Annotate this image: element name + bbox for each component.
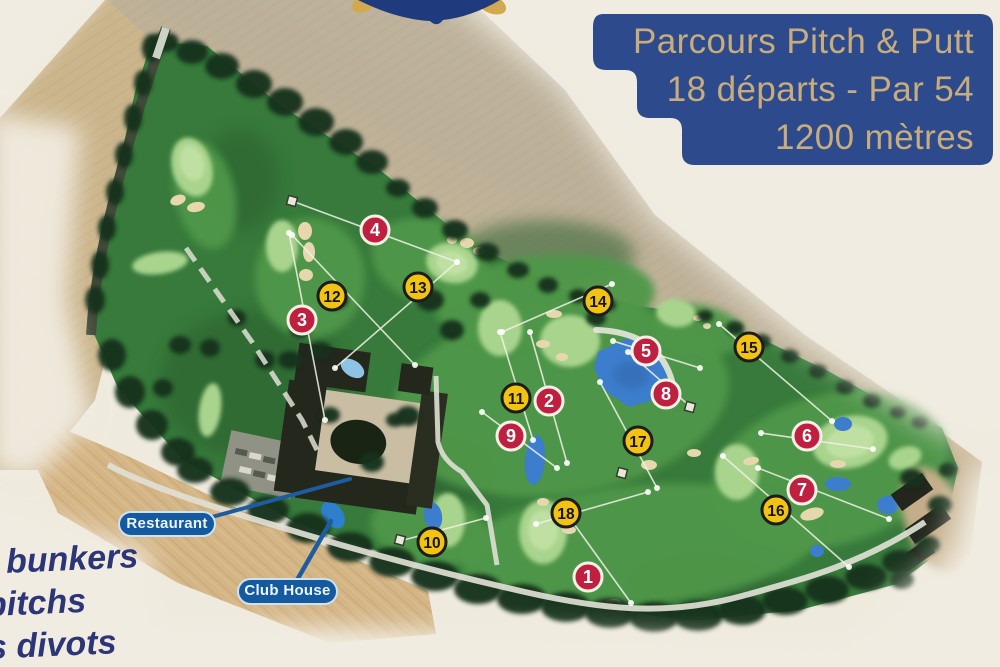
tree-cluster [278,351,302,369]
restaurant-label-pill: Restaurant [118,511,216,537]
hole-marker-number: 7 [797,480,807,500]
hole-marker-number: 1 [583,567,593,587]
hole-line-endpoint [610,338,616,344]
tree-cluster [91,251,109,279]
tree-cluster [863,394,881,408]
hole-line-endpoint [720,453,726,459]
course-aerial-map: 123456789101112131415161718 Parcours Pit… [0,0,1000,667]
hole-line-endpoint [697,365,703,371]
hole-marker-18: 18 [552,499,580,527]
tree-cluster [386,179,410,197]
hole-line-endpoint [886,516,892,522]
green [715,444,759,500]
tree-cluster [809,364,827,378]
tree-cluster [442,220,468,240]
restaurant-buildings [273,342,452,517]
hole-marker-number: 15 [740,340,758,357]
tree-cluster [98,215,116,241]
hole-marker-number: 12 [323,289,340,306]
tree-cluster [298,108,334,136]
tree-cluster [538,277,558,293]
tee-box [684,401,695,412]
tree-cluster [115,142,133,168]
hole-line-endpoint [554,465,560,471]
hole-line-endpoint [332,365,338,371]
tree-cluster [176,40,208,64]
tree-cluster [939,463,957,477]
tree-cluster [200,339,220,357]
tree-cluster [236,70,272,98]
tee-box [616,467,627,478]
hole-line-endpoint [564,460,570,466]
hole-marker-number: 6 [802,426,812,446]
hole-line-endpoint [454,259,460,265]
title-line-3: 1200 mètres [775,118,974,157]
bunker [298,222,312,240]
bunker [687,449,701,457]
hole-line-endpoint [716,321,722,327]
tree-cluster [412,198,438,218]
bunker [536,340,550,348]
tree-cluster [85,286,105,314]
hole-line-endpoint [530,437,536,443]
hole-marker-1: 1 [574,563,602,591]
hole-marker-10: 10 [418,528,446,556]
hole-marker-17: 17 [624,427,652,455]
hole-marker-number: 3 [297,310,307,330]
hole-line-endpoint [645,489,651,495]
legend-fragment-divots: s divots [0,623,117,667]
tree-cluster [781,349,799,363]
hole-marker-11: 11 [502,384,530,412]
bunker [703,323,711,329]
golf-course-map-sign: 123456789101112131415161718 Parcours Pit… [0,0,1000,667]
tree-cluster [836,380,854,394]
hole-marker-14: 14 [584,287,612,315]
hole-marker-number: 8 [661,384,671,404]
bunker [299,269,313,281]
tree-cluster [890,571,914,589]
hole-marker-number: 17 [629,434,646,451]
legend-fragment-bunkers: bunkers [5,537,139,582]
bunker [556,353,568,361]
hole-line-endpoint [533,521,539,527]
hole-line-endpoint [497,329,503,335]
hole-line-endpoint [755,465,761,471]
hole-marker-6: 6 [793,422,821,450]
tree-cluster [115,376,145,408]
hole-marker-16: 16 [762,496,790,524]
hole-marker-9: 9 [497,422,525,450]
hole-marker-3: 3 [288,306,316,334]
hole-line-endpoint [625,349,631,355]
tree-cluster [386,413,404,427]
hole-marker-number: 10 [423,535,440,552]
hole-marker-7: 7 [788,476,816,504]
tree-cluster [890,406,906,418]
hole-line-endpoint [758,430,764,436]
hole-line-endpoint [527,329,533,335]
pond [834,417,852,431]
hole-marker-2: 2 [535,387,563,415]
bunker [537,498,549,506]
green [478,300,522,356]
hole-line-endpoint [322,417,328,423]
title-line-1: Parcours Pitch & Putt [633,22,974,61]
hole-marker-number: 5 [641,341,651,361]
hole-line-endpoint [412,362,418,368]
tree-cluster [329,129,363,155]
hole-line-endpoint [654,485,660,491]
hole-line-endpoint [597,379,603,385]
green [266,220,298,272]
tree-cluster [134,70,152,96]
hole-marker-number: 16 [767,503,785,520]
hole-line-endpoint [609,281,615,287]
tree-cluster [928,496,952,514]
hole-marker-number: 4 [370,220,380,240]
hole-marker-number: 18 [557,506,575,523]
tree-cluster [916,536,940,554]
pond [810,545,824,557]
tree-cluster [440,320,464,340]
hole-marker-15: 15 [735,333,763,361]
tree-cluster [98,339,126,371]
tree-cluster [169,336,191,354]
tree-cluster [900,469,924,487]
hole-line-endpoint [870,446,876,452]
hole-line-endpoint [628,600,634,606]
hole-line-endpoint [479,409,485,415]
hole-marker-12: 12 [318,282,346,310]
hole-marker-number: 11 [508,391,525,408]
tree-cluster [360,452,384,472]
hole-marker-5: 5 [632,337,660,365]
hole-marker-number: 2 [544,391,554,411]
legend-fragment-pitchs: pitchs [0,582,87,625]
bunker [830,460,846,468]
tree-cluster [882,550,918,574]
pond [825,477,851,491]
hole-marker-number: 14 [589,294,607,311]
tree-cluster [356,150,388,174]
tree-cluster [136,410,168,440]
tree-cluster [177,457,213,483]
tree-cluster [205,53,239,79]
hole-marker-number: 13 [409,280,427,297]
tree-cluster [507,262,529,278]
tree-cluster [106,179,124,205]
bunker [460,238,474,248]
hole-line-endpoint [483,515,489,521]
tee-box [394,534,405,545]
title-line-2: 18 départs - Par 54 [667,70,974,109]
hole-line-endpoint [829,418,835,424]
building-block [398,363,434,395]
tree-cluster [470,292,490,308]
hole-line-endpoint [846,564,852,570]
tree-cluster [697,310,713,322]
tree-cluster [805,576,849,604]
tree-cluster [210,478,250,506]
tee-box [286,195,297,206]
hole-line-endpoint [289,232,295,238]
hole-marker-13: 13 [404,273,432,301]
hole-marker-4: 4 [361,216,389,244]
tree-cluster [475,243,499,261]
tree-cluster [153,379,173,397]
tree-cluster [267,88,303,116]
hole-marker-number: 9 [506,426,516,446]
club-house-label-pill: Club House [237,578,338,605]
tree-cluster [124,104,142,132]
hole-marker-8: 8 [652,380,680,408]
